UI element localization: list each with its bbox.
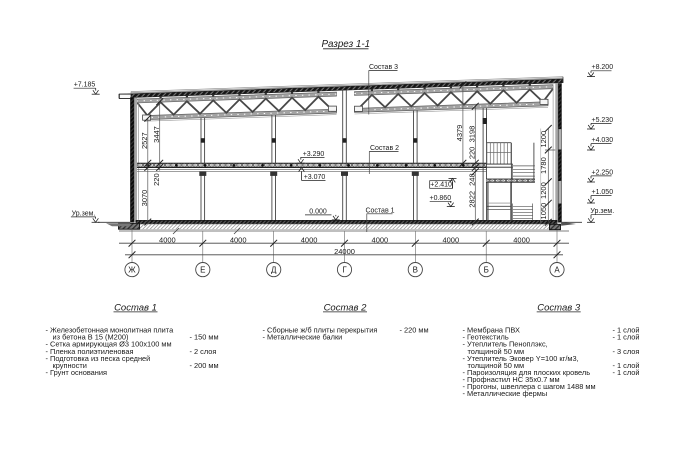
svg-text:1780: 1780 (539, 157, 548, 174)
svg-text:220: 220 (152, 173, 161, 186)
svg-text:1050: 1050 (539, 203, 548, 220)
svg-text:В: В (413, 266, 418, 275)
svg-text:Состав 1: Состав 1 (365, 207, 394, 214)
svg-text:Б: Б (484, 266, 489, 275)
svg-text:- 3 слоя: - 3 слоя (613, 347, 640, 356)
svg-text:248: 248 (468, 173, 477, 186)
svg-text:+8.200: +8.200 (591, 64, 613, 71)
svg-text:Ур.зем.: Ур.зем. (590, 208, 614, 215)
svg-text:- Грунт основания: - Грунт основания (46, 368, 108, 377)
svg-text:+4.030: +4.030 (591, 137, 613, 144)
svg-text:3447: 3447 (152, 126, 161, 143)
svg-text:- 220 мм: - 220 мм (400, 326, 429, 335)
svg-text:- 1 слой: - 1 слой (613, 368, 640, 377)
svg-text:4379: 4379 (455, 125, 464, 142)
svg-text:Д: Д (271, 266, 277, 275)
svg-text:+5.230: +5.230 (591, 117, 613, 124)
svg-text:4000: 4000 (230, 235, 247, 244)
svg-text:1200: 1200 (539, 131, 548, 148)
svg-text:Разрез 1-1: Разрез 1-1 (322, 39, 371, 50)
svg-text:3198: 3198 (468, 126, 477, 143)
svg-text:А: А (554, 266, 560, 275)
svg-text:3070: 3070 (140, 190, 149, 207)
svg-text:+1.050: +1.050 (591, 189, 613, 196)
svg-text:4000: 4000 (513, 235, 530, 244)
svg-text:+2.250: +2.250 (591, 169, 613, 176)
svg-text:- Металлические балки: - Металлические балки (263, 333, 343, 342)
svg-text:- 1 слой: - 1 слой (613, 333, 640, 342)
svg-text:- 200 мм: - 200 мм (190, 361, 219, 370)
svg-text:4000: 4000 (442, 235, 459, 244)
svg-text:220: 220 (468, 147, 477, 160)
svg-text:4000: 4000 (159, 235, 176, 244)
svg-text:Состав 2: Состав 2 (370, 145, 399, 152)
svg-text:Г: Г (342, 266, 347, 275)
svg-text:+2.410: +2.410 (430, 182, 452, 189)
svg-text:2822: 2822 (468, 191, 477, 208)
svg-text:- 2 слоя: - 2 слоя (190, 347, 217, 356)
svg-text:- 150 мм: - 150 мм (190, 333, 219, 342)
svg-text:1200: 1200 (539, 182, 548, 199)
svg-text:Ур.зем.: Ур.зем. (72, 210, 96, 217)
svg-text:+7.185: +7.185 (74, 82, 96, 89)
svg-text:- Металлические фермы: - Металлические фермы (463, 389, 548, 398)
svg-text:Е: Е (200, 266, 205, 275)
svg-text:Состав 3: Состав 3 (369, 64, 398, 71)
svg-text:4000: 4000 (301, 235, 318, 244)
svg-text:2527: 2527 (140, 132, 149, 149)
svg-text:24000: 24000 (334, 247, 355, 256)
svg-text:Ж: Ж (128, 266, 136, 275)
svg-text:4000: 4000 (372, 235, 389, 244)
